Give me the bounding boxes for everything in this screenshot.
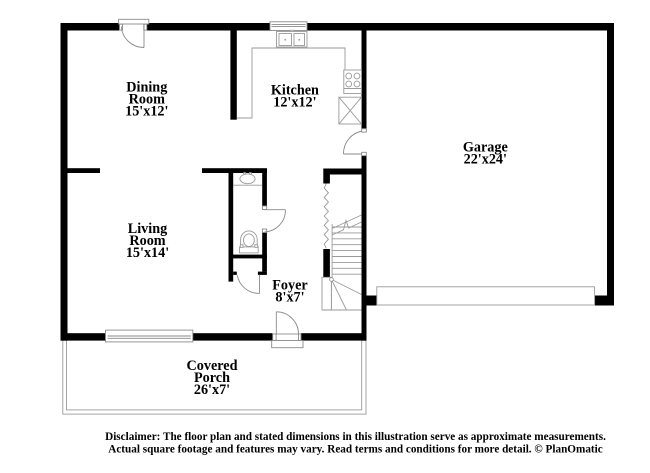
svg-text:Disclaimer: The floor plan and: Disclaimer: The floor plan and stated di… <box>105 431 606 443</box>
svg-text:8'x7': 8'x7' <box>275 290 304 306</box>
svg-text:Actual square footage and feat: Actual square footage and features may v… <box>108 444 602 456</box>
svg-text:15'x12': 15'x12' <box>125 104 168 120</box>
svg-text:22'x24': 22'x24' <box>464 151 507 167</box>
svg-text:15'x14': 15'x14' <box>126 245 169 261</box>
svg-text:12'x12': 12'x12' <box>273 95 316 111</box>
svg-text:26'x7': 26'x7' <box>194 382 230 398</box>
